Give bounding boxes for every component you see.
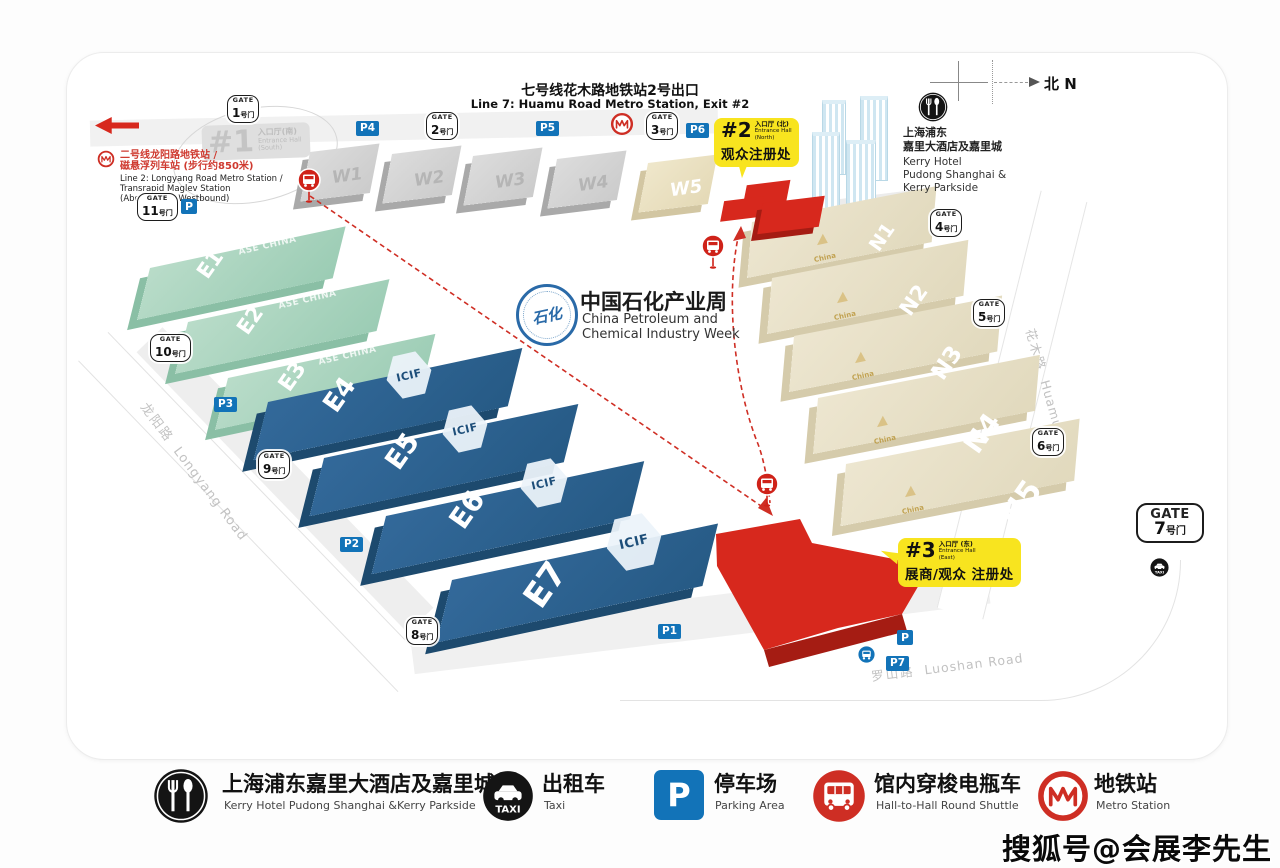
compass-line-horizontal	[930, 82, 988, 83]
parking-lot-icon-southeast: P	[897, 630, 913, 645]
gate-4-badge: GATE4号门	[930, 209, 962, 237]
shuttle-route-a	[310, 196, 764, 508]
parking-p3-badge: P3	[214, 397, 237, 412]
gate-5-badge: GATE5号门	[973, 299, 1005, 327]
entrance3-registration-label: 展商/观众 注册处	[905, 563, 1014, 583]
entrance2-callout: #2 入口厅 (北) Entrance Hall (North) 观众注册处	[714, 118, 799, 167]
expo-map-canvas: 七号线花木路地铁站2号出口 Line 7: Huamu Road Metro S…	[0, 0, 1280, 868]
icif-logo-text: ICIF	[618, 531, 651, 552]
event-title-en2: Chemical Industry Week	[582, 327, 740, 342]
legend-parking-zh: 停车场	[714, 774, 777, 795]
icif-logo-text: ICIF	[451, 420, 479, 438]
compass-north-label: 北 N	[1044, 73, 1077, 94]
taxi-icon-gate7	[1150, 558, 1169, 577]
hotel-note-en2: Pudong Shanghai &	[903, 169, 1006, 182]
entrance3-en1: Entrance Hall	[939, 548, 976, 554]
shuttle-legend-icon	[812, 769, 866, 823]
hotel-legend-icon	[153, 768, 209, 824]
hall-w1-label: W1	[331, 164, 364, 188]
hall-w3-label: W3	[494, 169, 527, 193]
n-logo-text: China	[873, 434, 896, 446]
entrance3-en2: (East)	[939, 555, 976, 561]
entrance3-zh: 入口厅 (东)	[939, 540, 973, 548]
taxi-legend-icon	[482, 770, 534, 822]
n-logo-text: China	[833, 310, 856, 322]
legend-metro-zh: 地铁站	[1094, 774, 1157, 795]
hall-w2-label: W2	[413, 167, 446, 191]
hotel-note: 上海浦东 嘉里大酒店及嘉里城 Kerry Hotel Pudong Shangh…	[903, 126, 1006, 195]
gate-7-badge: GATE 7号门	[1136, 503, 1204, 543]
route-overlay	[0, 0, 1280, 868]
hotel-icon	[918, 92, 948, 122]
n-logo-text: China	[851, 370, 874, 382]
n-logo-text: China	[901, 504, 924, 516]
metro-line2-zh2: 磁悬浮列车站 (步行约850米)	[120, 161, 290, 172]
parking-p2-badge: P2	[340, 537, 363, 552]
parking-p6-badge: P6	[686, 123, 709, 138]
route-arrowhead-2	[733, 226, 746, 241]
n-logo-text: China	[813, 252, 836, 264]
gate-8-badge: GATE8号门	[406, 617, 438, 645]
event-logo: 石化	[516, 284, 578, 346]
entrance2-registration-label: 观众注册处	[721, 143, 792, 163]
shuttle-stop-pin-north	[700, 234, 726, 270]
gate-6-badge: GATE6号门	[1032, 428, 1064, 456]
legend-taxi-en: Taxi	[544, 800, 565, 811]
gate-11-badge: GATE11号门	[137, 193, 178, 221]
parking-p5-badge: P5	[536, 121, 559, 136]
compass-line-vertical	[958, 61, 959, 101]
shuttle-stop-pin-west	[296, 168, 322, 204]
shuttle-route-b	[732, 233, 770, 503]
icif-logo-text: ICIF	[395, 366, 423, 384]
metro-line2-en1: Line 2: Longyang Road Metro Station /	[120, 174, 290, 184]
entrance2-en2: (North)	[755, 135, 792, 141]
parking-p7-badge: P7	[886, 656, 909, 671]
hotel-note-en1: Kerry Hotel	[903, 156, 1006, 169]
legend-hotel-en: Kerry Hotel Pudong Shanghai &Kerry Parks…	[224, 800, 476, 811]
shuttle-bus-stop-icon	[858, 646, 875, 663]
entrance2-zh: 入口厅 (北)	[755, 120, 789, 128]
metro-icon-top	[610, 112, 634, 136]
compass-line-dashed	[994, 82, 1028, 83]
metro-line2-zh1: 二号线龙阳路地铁站 /	[120, 150, 290, 161]
gate-3-badge: GATE3号门	[646, 112, 678, 140]
entrance3-callout: #3 入口厅 (东) Entrance Hall (East) 展商/观众 注册…	[898, 538, 1021, 587]
compass: 北 N	[930, 58, 1070, 108]
hotel-note-en3: Kerry Parkside	[903, 182, 1006, 195]
gate-9-badge: GATE9号门	[258, 451, 290, 479]
metro-icon-line2	[97, 150, 115, 168]
gate-10-badge: GATE10号门	[150, 334, 191, 362]
watermark: 搜狐号@会展李先生	[1002, 826, 1272, 868]
legend-parking-en: Parking Area	[715, 800, 785, 811]
metro-legend-icon	[1036, 769, 1090, 823]
hotel-note-zh1: 上海浦东	[903, 126, 1006, 140]
icif-logo-text: ICIF	[530, 474, 558, 492]
entrance3-callout-pointer	[879, 551, 898, 564]
hall-w5-label: W5	[669, 176, 704, 201]
legend-hotel-zh: 上海浦东嘉里大酒店及嘉里城	[222, 774, 495, 795]
gate-1-badge: GATE1号门	[227, 95, 259, 123]
shuttle-stop-pin-east	[754, 472, 780, 508]
parking-p1-badge: P1	[658, 624, 681, 639]
compass-line-dotted	[992, 60, 993, 104]
parking-lot-icon-northwest: P	[181, 199, 197, 214]
legend-shuttle-zh: 馆内穿梭电瓶车	[874, 774, 1021, 795]
metro-line7-note-en: Line 7: Huamu Road Metro Station, Exit #…	[420, 97, 800, 111]
entrance2-en1: Entrance Hall	[755, 128, 792, 134]
legend-taxi-zh: 出租车	[542, 774, 605, 795]
legend-shuttle-en: Hall-to-Hall Round Shuttle	[876, 800, 1019, 811]
event-title-en1: China Petroleum and	[582, 312, 718, 327]
north-arrow-icon	[1029, 77, 1040, 87]
hotel-note-zh2: 嘉里大酒店及嘉里城	[903, 140, 1006, 154]
entrance3-number: #3	[905, 541, 936, 559]
gate-2-badge: GATE2号门	[426, 112, 458, 140]
parking-legend-icon: P	[654, 770, 704, 820]
parking-p4-badge: P4	[356, 121, 379, 136]
legend-metro-en: Metro Station	[1096, 800, 1170, 811]
hall-w4-label: W4	[577, 172, 610, 196]
entrance2-number: #2	[721, 121, 752, 139]
